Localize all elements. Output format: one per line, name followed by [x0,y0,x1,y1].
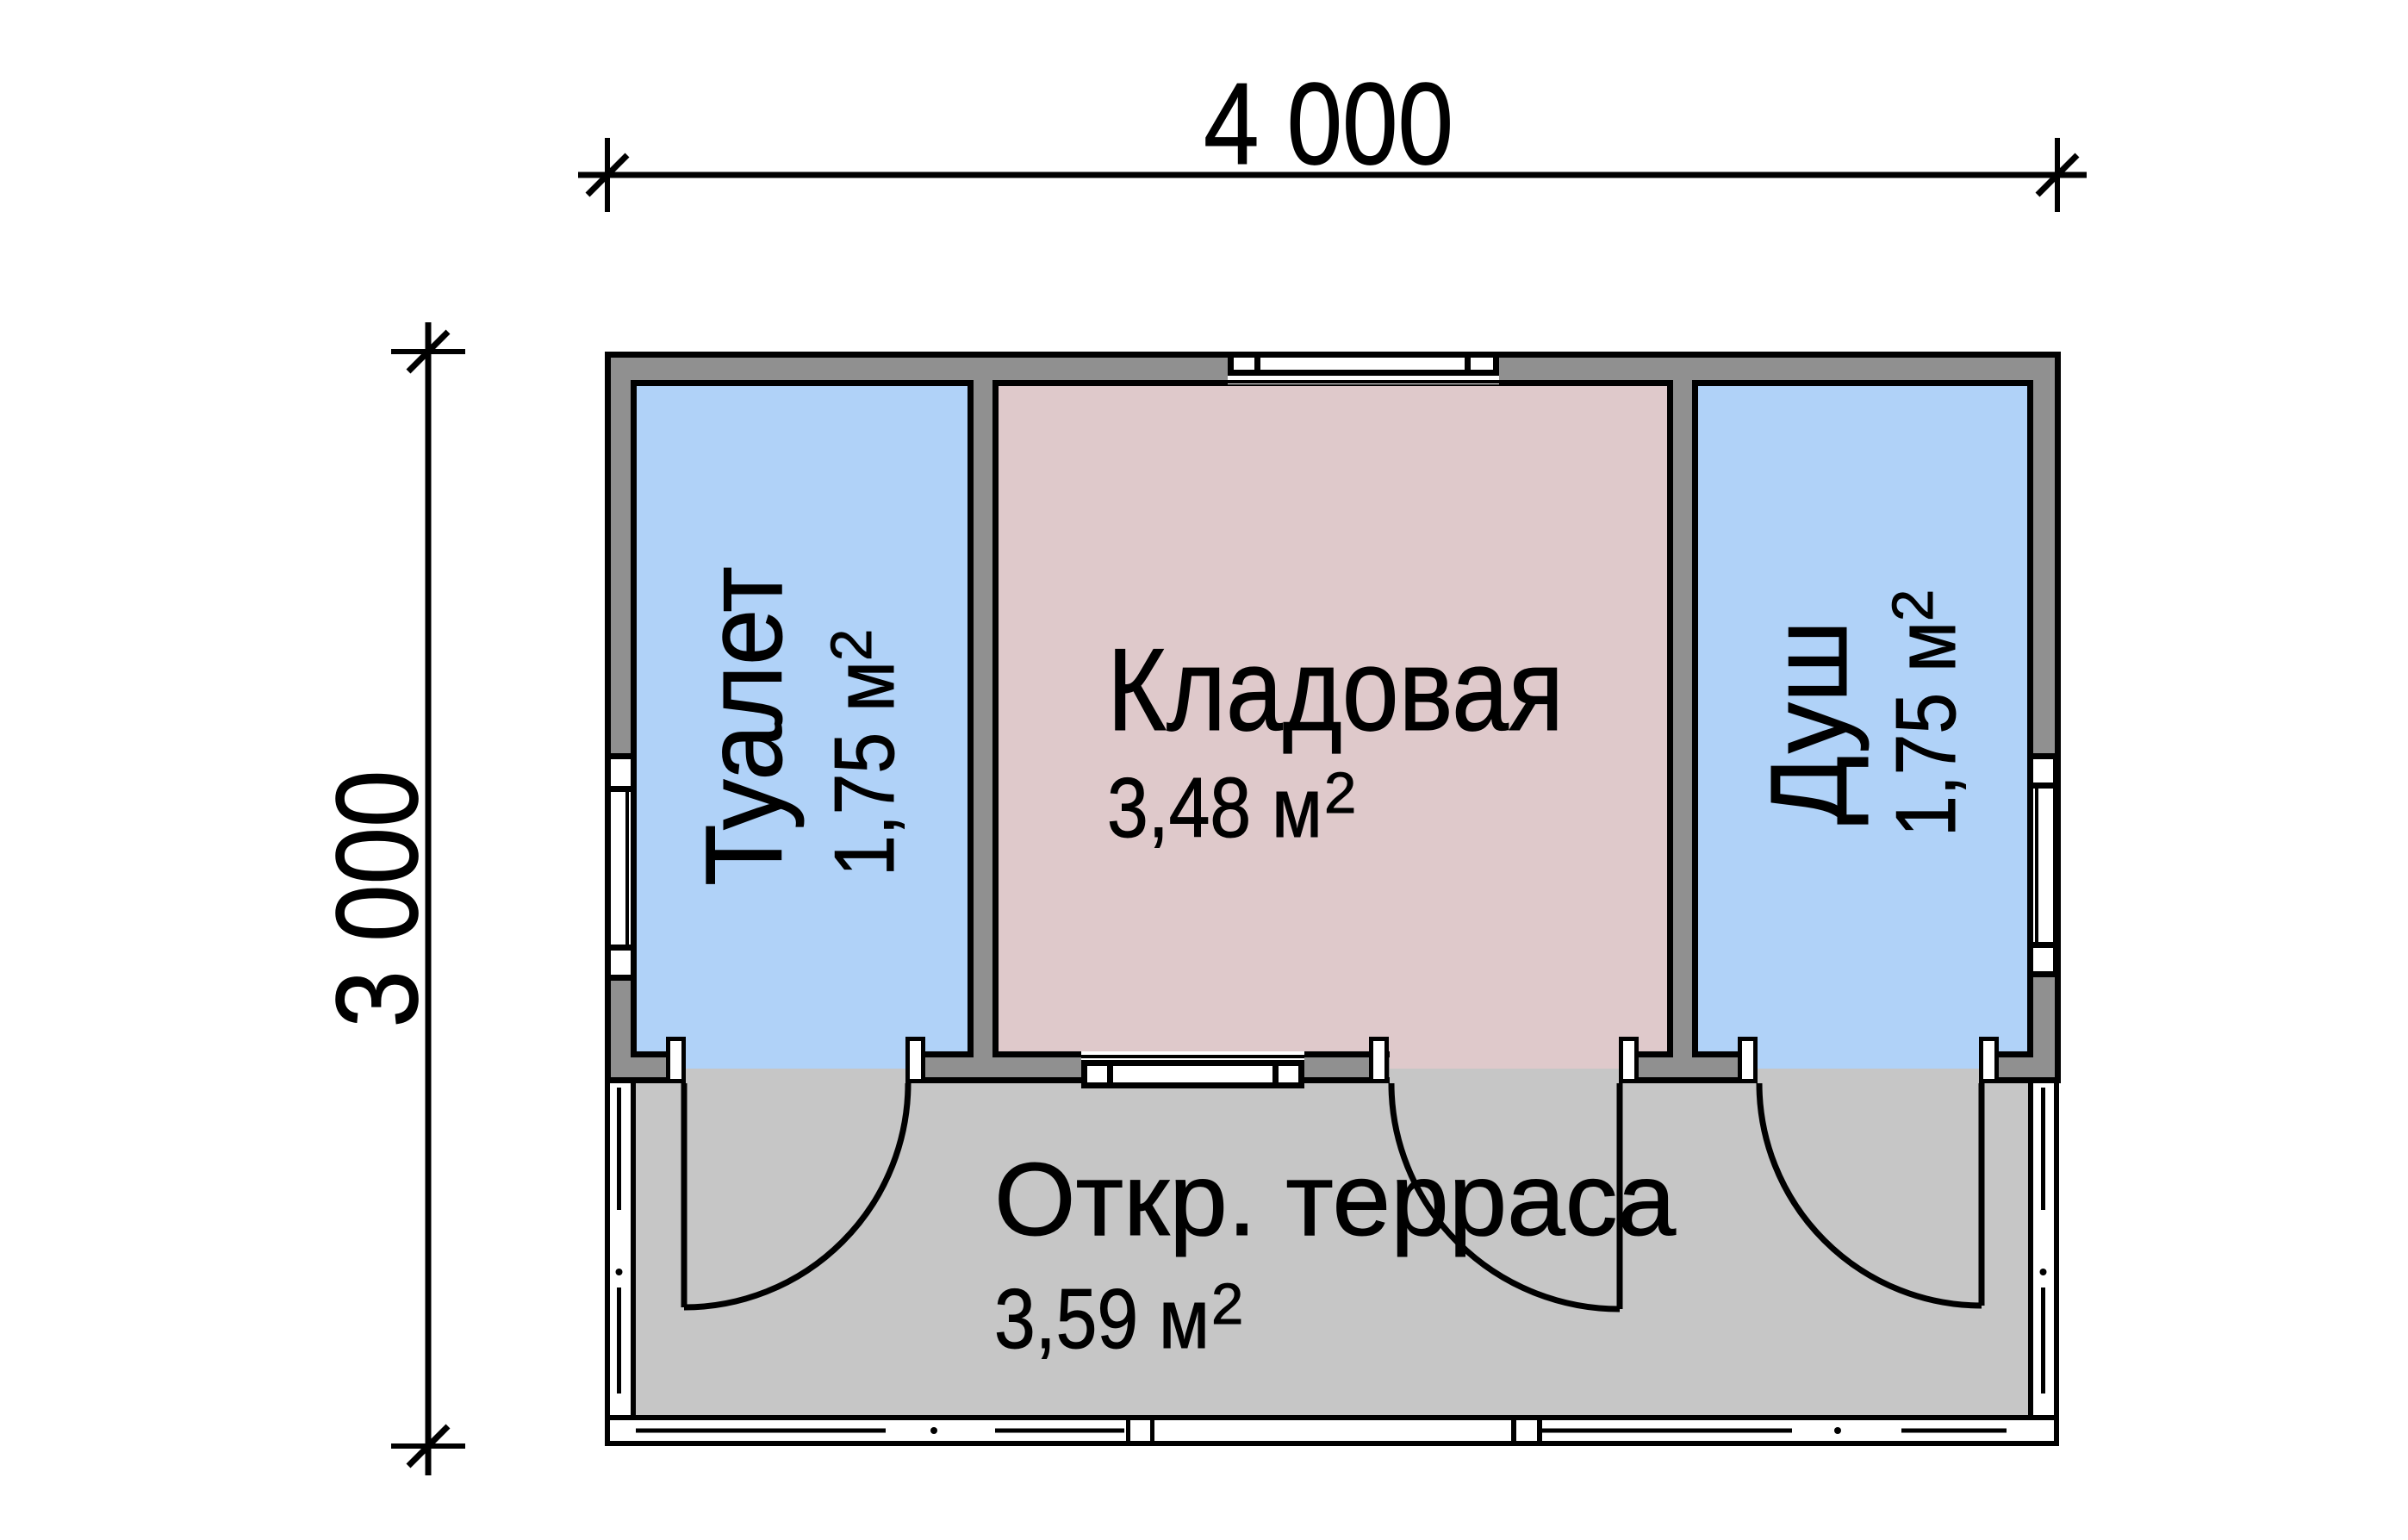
svg-text:Откр. терраса: Откр. терраса [994,1142,1676,1257]
svg-text:Туалет: Туалет [683,566,805,886]
svg-text:1,75 м: 1,75 м [817,661,912,876]
svg-text:4 000: 4 000 [1204,59,1453,189]
svg-text:1,75 м: 1,75 м [1878,621,1973,837]
svg-text:2: 2 [1881,589,1945,621]
svg-text:3,59 м: 3,59 м [994,1271,1210,1366]
svg-text:Кладовая: Кладовая [1107,624,1564,755]
svg-text:3,48 м: 3,48 м [1107,760,1322,855]
svg-text:Душ: Душ [1748,620,1870,825]
svg-text:2: 2 [1211,1272,1243,1337]
svg-text:2: 2 [819,629,884,661]
svg-text:3 000: 3 000 [312,770,442,1028]
svg-text:2: 2 [1324,761,1356,826]
